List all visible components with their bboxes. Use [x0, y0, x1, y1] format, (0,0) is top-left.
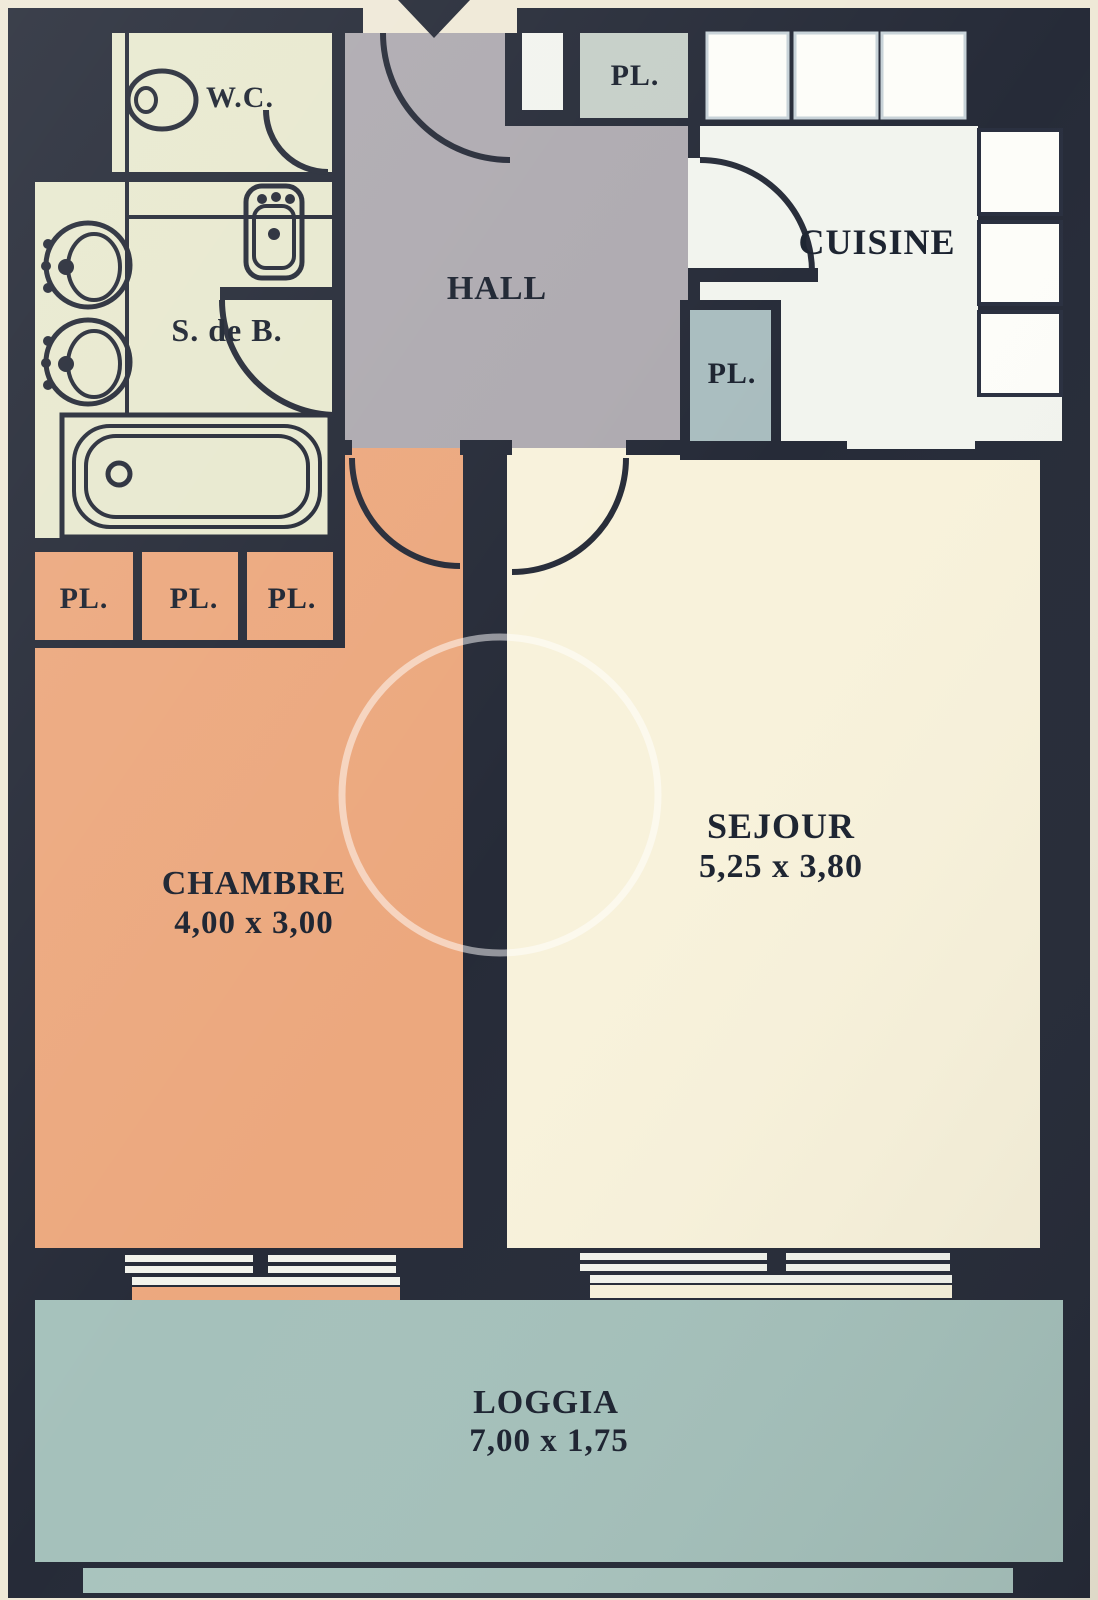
floor-plan-canvas: W.C. S. de B. HALL PL. CUISINE PL. PL. P… [0, 0, 1098, 1600]
floor-plan: W.C. S. de B. HALL PL. CUISINE PL. PL. P… [0, 0, 1098, 1600]
photo-lighting-overlay [0, 0, 1098, 1600]
